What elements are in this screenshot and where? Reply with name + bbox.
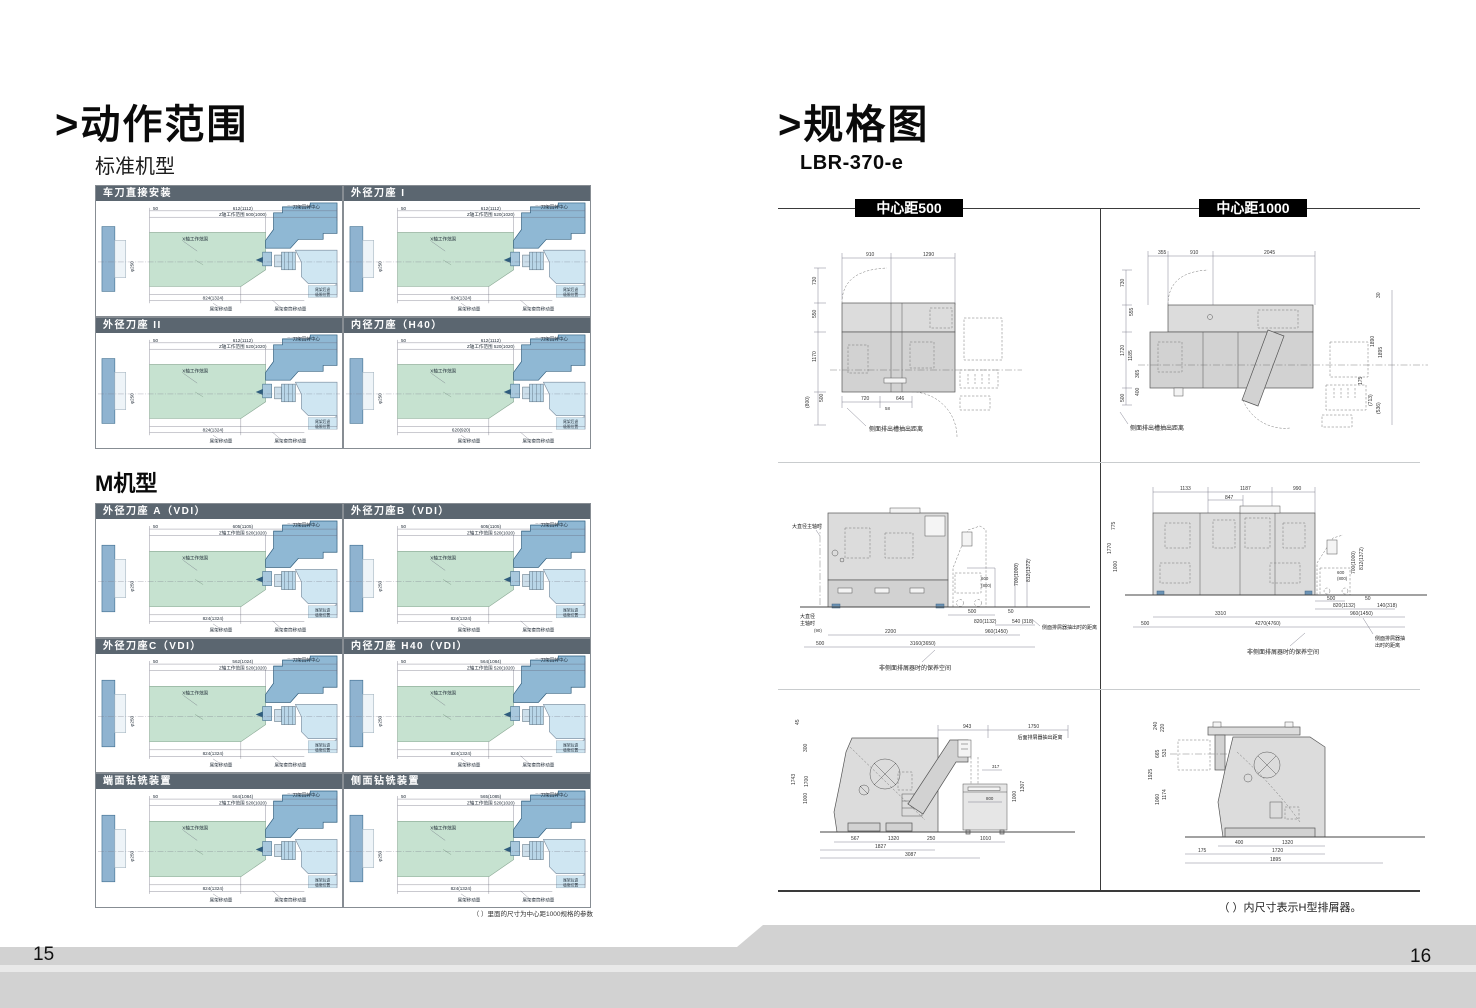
dim-label: 极限位置: [315, 882, 330, 887]
center-distance-500-label: 中心距500: [855, 199, 963, 217]
catalog-spread: >动作范围 标准机型 车刀直接安装 612(1112) Z轴工作范围 500(1…: [0, 0, 1476, 1008]
dim-label: 刀架回转中心: [541, 203, 569, 210]
panel-title: 外径刀座 A（VDI）: [96, 504, 342, 519]
dim-label: 564(1084): [232, 794, 253, 799]
dim-label: 1320: [888, 836, 899, 842]
dim-label: X轴工作范围: [182, 367, 208, 374]
dim-label: 605(1105): [233, 524, 254, 529]
model-name: LBR-370-e: [800, 152, 903, 175]
dim-label: 50: [401, 338, 407, 343]
panel-m-3: 外径刀座C（VDI） 562(1024) Z轴工作范围 520(1020) 50…: [95, 638, 343, 773]
spec-drawing-500-frontview: 大直径主轴时 600 (800) 700(1000) 812(1372) 500…: [790, 468, 1102, 698]
spec-row-divider-1: [778, 462, 1420, 463]
dim-label: 刀架回转中心: [293, 522, 321, 529]
dim-label: 尾架后退: [563, 877, 578, 882]
dim-label: 824(1324): [203, 616, 224, 621]
dim-label: 尾架移动量: [458, 438, 481, 445]
dim-label: 尾架移动量: [210, 761, 233, 768]
dim-label: 646: [896, 396, 905, 402]
dim-label: φ250: [378, 580, 383, 591]
dim-label: 847: [1225, 495, 1234, 501]
dim-label: 刀架回转中心: [541, 792, 569, 799]
panel-title: 内径刀座（H40）: [344, 318, 590, 333]
dim-label: 极限位置: [563, 612, 578, 617]
dim-label: X轴工作范围: [430, 554, 456, 561]
dim-label: 317: [992, 764, 1000, 769]
dim-label: Z轴工作范围 520(1020): [467, 343, 515, 350]
dim-label: 700(1000): [1014, 563, 1020, 586]
dim-label: 1185: [1128, 350, 1134, 361]
dim-label: (800): [1337, 576, 1348, 581]
dim-label: 3160(3650): [910, 641, 936, 647]
dim-label: 1170: [812, 351, 818, 362]
panel-std-2: 外径刀座 I 612(1112) Z轴工作范围 520(1020) 50 X轴工…: [343, 185, 591, 317]
dim-label: 尾架后退: [315, 419, 330, 424]
dim-label: X轴工作范围: [430, 235, 456, 242]
dim-label: 尾架移动量: [458, 896, 481, 903]
dim-label: X轴工作范围: [182, 235, 208, 242]
dim-label: 820(1132): [974, 619, 997, 625]
dim-label: 960(1450): [1350, 611, 1373, 617]
dim-label: 刀架回转中心: [293, 657, 321, 664]
dim-label: 50: [153, 206, 159, 211]
dim-label: 550: [812, 309, 818, 318]
dim-label: 730: [1120, 278, 1126, 287]
dim-label: 极限位置: [315, 292, 330, 297]
dim-label: 600: [1337, 570, 1345, 575]
dim-label: 990: [1293, 486, 1302, 492]
dim-label: 730: [812, 276, 818, 285]
dim-label: 极限位置: [563, 747, 578, 752]
dim-label: 尾架套筒移动量: [522, 761, 554, 768]
dim-label: 1307: [1020, 781, 1026, 792]
dim-label: 531: [1162, 748, 1168, 757]
dim-label: 824(1324): [203, 427, 224, 432]
dim-label: 45: [795, 719, 801, 725]
dim-label: 824(1324): [451, 295, 472, 300]
dim-label: 564(1084): [480, 659, 501, 664]
panel-m-1: 外径刀座 A（VDI） 605(1105) Z轴工作范围 520(1020) 5…: [95, 503, 343, 638]
annotation-label: 出时的距离: [1375, 642, 1400, 649]
panel-title: 侧面钻铣装置: [344, 774, 590, 789]
panel-m-5: 端面钻铣装置 564(1084) Z轴工作范围 520(1020) 50 X轴工…: [95, 773, 343, 908]
dim-label: 1133: [1180, 486, 1191, 492]
dim-label: 1827: [875, 844, 886, 850]
panel-m-2: 外径刀座B（VDI） 605(1105) Z轴工作范围 520(1020) 50…: [343, 503, 591, 638]
dim-label: φ250: [378, 850, 383, 861]
dim-label: X轴工作范围: [182, 824, 208, 831]
dim-label: 尾架后退: [315, 742, 330, 747]
dim-label: 1770: [1107, 543, 1113, 554]
footer-band: [0, 920, 1476, 1008]
dim-label: 824(1324): [203, 751, 224, 756]
work-range-diagram: 605(1105) Z轴工作范围 520(1020) 50 X轴工作范围 刀架回…: [344, 519, 590, 637]
dim-label: (800): [805, 396, 811, 408]
dim-label: 尾架后退: [315, 287, 330, 292]
dim-label: 1895: [1270, 857, 1281, 863]
annotation-label: 非侧面排屑器时的保养空间: [1247, 648, 1319, 656]
dim-label: 365: [1135, 369, 1141, 378]
dim-label: 2200: [885, 629, 896, 635]
dim-label: 500: [819, 393, 825, 402]
dim-label: φ250: [378, 393, 383, 404]
spec-drawing-1000-frontview: 1133 1187 990 847 775 1770 1000 600 (800…: [1105, 468, 1445, 698]
dim-label: Z轴工作范围 520(1020): [219, 665, 267, 672]
dim-label: 612(1112): [233, 206, 254, 211]
dim-label: 尾架移动量: [210, 306, 233, 313]
dim-label: 尾架后退: [315, 877, 330, 882]
panel-m-4: 内径刀座 H40（VDI） 564(1084) Z轴工作范围 520(1020)…: [343, 638, 591, 773]
dim-label: 500: [1327, 596, 1336, 602]
dim-label: 尾架后退: [563, 742, 578, 747]
annotation-label: 非侧面排屑器时的保养空间: [879, 664, 951, 672]
panel-title: 车刀直接安装: [96, 186, 342, 201]
dim-label: 612(1112): [481, 206, 502, 211]
dim-label: 尾架后退: [315, 607, 330, 612]
dim-label: 775: [1111, 521, 1117, 530]
dim-label: 665: [1155, 749, 1161, 758]
dim-label: 58: [885, 406, 890, 411]
dim-label: 500: [816, 641, 825, 647]
dim-label: φ250: [130, 715, 135, 726]
dim-label: 812(1372): [1359, 547, 1365, 570]
dim-label: 极限位置: [315, 747, 330, 752]
dim-label: 500: [1141, 621, 1150, 627]
dim-label: 极限位置: [563, 882, 578, 887]
dim-label: 824(1324): [203, 886, 224, 891]
panel-std-4: 内径刀座（H40） 612(1112) Z轴工作范围 520(1020) 50 …: [343, 317, 591, 449]
dim-label: 50: [401, 524, 407, 529]
dim-label: 50: [153, 659, 159, 664]
dim-label: 1925: [1148, 769, 1154, 780]
dim-label: 812(1372): [1026, 559, 1032, 582]
dim-label: 240: [1153, 721, 1159, 730]
dim-label: X轴工作范围: [182, 689, 208, 696]
dim-label: 565(1085): [480, 794, 501, 799]
dim-label: 极限位置: [315, 612, 330, 617]
dim-label: 尾架后退: [563, 419, 578, 424]
dim-label: 910: [1190, 250, 1199, 256]
section-standard-heading: 标准机型: [95, 150, 175, 179]
dim-label: 567: [851, 836, 860, 842]
left-page-title: >动作范围: [55, 92, 248, 150]
dim-label: 极限位置: [563, 292, 578, 297]
dim-label: 尾架后退: [563, 607, 578, 612]
dim-label: 400: [1235, 840, 1244, 846]
dim-label: Z轴工作范围 520(1020): [467, 665, 515, 672]
dim-label: 1720: [1120, 345, 1126, 356]
dim-label: 30: [1376, 292, 1382, 298]
dim-label: X轴工作范围: [430, 367, 456, 374]
dim-label: 尾架套筒移动量: [274, 306, 306, 313]
dim-label: 50: [1365, 596, 1371, 602]
panel-title: 内径刀座 H40（VDI）: [344, 639, 590, 654]
panel-title: 外径刀座 II: [96, 318, 342, 333]
dim-label: 刀架回转中心: [541, 522, 569, 529]
dim-label: 612(1112): [233, 338, 254, 343]
right-page-footnote: （ ）内尺寸表示H型排屑器。: [1160, 899, 1420, 915]
panel-title: 外径刀座 I: [344, 186, 590, 201]
dim-label: 尾架套筒移动量: [522, 626, 554, 633]
spec-drawing-1000-topview: 355 910 2045 730 555 1720 1185 365 400 5…: [1108, 230, 1438, 455]
page-number-left: 15: [33, 944, 54, 966]
dim-label: 刀架回转中心: [293, 203, 321, 210]
dim-label: 1750: [1028, 724, 1039, 730]
dim-label: 612(1112): [481, 338, 502, 343]
dim-label: 1720: [1272, 848, 1283, 854]
work-range-diagram: 612(1112) Z轴工作范围 520(1020) 50 X轴工作范围 刀架回…: [344, 333, 590, 448]
dim-label: 562(1024): [232, 659, 253, 664]
dim-label: 尾架移动量: [458, 306, 481, 313]
dim-label: 刀架回转中心: [293, 792, 321, 799]
dim-label: 300: [803, 743, 809, 752]
dim-label: (800): [981, 583, 992, 588]
dim-label: 50: [1008, 609, 1014, 615]
dim-label: 1060: [1155, 794, 1161, 805]
dim-label: X轴工作范围: [430, 824, 456, 831]
dim-label: 3310: [1215, 611, 1226, 617]
spec-drawing-1000-sideview: 240 220 665 531 1925 1060 1174 400 1320 …: [1125, 692, 1455, 922]
dim-label: (536): [1376, 402, 1382, 414]
page-number-right: 16: [1410, 946, 1431, 968]
dim-label: 尾架移动量: [458, 626, 481, 633]
dim-label: 刀架回转中心: [293, 335, 321, 342]
work-range-diagram: 564(1084) Z轴工作范围 520(1020) 50 X轴工作范围 刀架回…: [344, 654, 590, 772]
annotation-label: 大直径主轴时: [792, 523, 822, 530]
dim-label: 尾架移动量: [210, 896, 233, 903]
dim-label: 1000: [1113, 561, 1119, 572]
dim-label: 50: [401, 206, 407, 211]
dim-label: 尾架移动量: [210, 626, 233, 633]
dim-label: 50: [153, 338, 159, 343]
dim-label: 极限位置: [315, 424, 330, 429]
dim-label: 50: [153, 794, 159, 799]
panel-title: 外径刀座B（VDI）: [344, 504, 590, 519]
dim-label: 620(920): [452, 427, 471, 432]
dim-label: 220: [1160, 723, 1166, 732]
dim-label: 1010: [980, 836, 991, 842]
dim-label: 400: [1135, 387, 1141, 396]
dim-label: 960(1450): [985, 629, 1008, 635]
dim-label: 尾架套筒移动量: [522, 306, 554, 313]
dim-label: 800: [986, 796, 994, 801]
dim-label: 1320: [1282, 840, 1293, 846]
section-m-heading: M机型: [95, 466, 157, 498]
dim-label: 尾架套筒移动量: [274, 626, 306, 633]
annotation-label: 大直径: [800, 613, 815, 620]
dim-label: 175: [1198, 848, 1207, 854]
work-range-diagram: 612(1112) Z轴工作范围 520(1020) 50 X轴工作范围 刀架回…: [96, 333, 342, 448]
dim-label: 刀架回转中心: [541, 657, 569, 664]
dim-label: 1700: [804, 776, 810, 787]
dim-label: 尾架移动量: [458, 761, 481, 768]
dim-label: 极限位置: [563, 424, 578, 429]
dim-label: 1187: [1240, 486, 1251, 492]
work-range-diagram: 612(1112) Z轴工作范围 500(1000) 50 X轴工作范围 刀架回…: [96, 201, 342, 316]
dim-label: 1743: [791, 774, 797, 785]
dim-label: 尾架套筒移动量: [274, 438, 306, 445]
dim-label: X轴工作范围: [182, 554, 208, 561]
dim-label: 720: [861, 396, 870, 402]
dim-label: 4270(4760): [1255, 621, 1281, 627]
dim-label: 尾架套筒移动量: [522, 896, 554, 903]
dim-label: 尾架后退: [563, 287, 578, 292]
dim-label: 1174: [1162, 789, 1168, 800]
panel-title: 端面钻铣装置: [96, 774, 342, 789]
dim-label: φ250: [130, 850, 135, 861]
dim-label: φ250: [378, 715, 383, 726]
dim-label: 824(1324): [451, 751, 472, 756]
dim-label: 500: [1120, 393, 1126, 402]
dim-label: φ250: [130, 580, 135, 591]
dim-label: 50: [401, 659, 407, 664]
dim-label: 尾架套筒移动量: [522, 438, 554, 445]
dim-label: 600: [981, 576, 989, 581]
dim-label: 50: [401, 794, 407, 799]
center-distance-1000-label: 中心距1000: [1199, 199, 1307, 217]
dim-label: 175: [1358, 376, 1364, 385]
dim-label: X轴工作范围: [430, 689, 456, 696]
annotation-label: 后面排屑器抽出距离: [1017, 734, 1062, 741]
dim-label: 1000: [803, 793, 809, 804]
dim-label: 555: [1129, 307, 1135, 316]
dim-label: (90): [814, 628, 822, 633]
annotation-label: 主轴时: [800, 620, 815, 627]
dim-label: Z轴工作范围 520(1020): [467, 800, 515, 807]
dim-label: 500: [968, 609, 977, 615]
right-page-title: >规格图: [778, 92, 929, 150]
dim-label: (713): [1368, 394, 1374, 406]
dim-label: 3087: [905, 852, 916, 858]
dim-label: 943: [963, 724, 972, 730]
dim-label: 尾架套筒移动量: [274, 896, 306, 903]
work-range-diagram: 605(1105) Z轴工作范围 520(1020) 50 X轴工作范围 刀架回…: [96, 519, 342, 637]
dim-label: φ250: [378, 261, 383, 272]
annotation-label: 侧面排屑器抽出时的距离: [1042, 624, 1097, 631]
dim-label: 1895: [1378, 347, 1384, 358]
dim-label: 355: [1158, 250, 1167, 256]
panel-m-6: 侧面钻铣装置 565(1085) Z轴工作范围 520(1020) 50 X轴工…: [343, 773, 591, 908]
dim-label: Z轴工作范围 520(1020): [219, 343, 267, 350]
dim-label: 910: [866, 252, 875, 258]
dim-label: Z轴工作范围 520(1020): [467, 530, 515, 537]
panel-std-3: 外径刀座 II 612(1112) Z轴工作范围 520(1020) 50 X轴…: [95, 317, 343, 449]
dim-label: 尾架移动量: [210, 438, 233, 445]
dim-label: 820(1132): [1333, 603, 1356, 609]
dim-label: 250: [927, 836, 936, 842]
dim-label: 824(1324): [203, 295, 224, 300]
panel-std-1: 车刀直接安装 612(1112) Z轴工作范围 500(1000) 50 X轴工…: [95, 185, 343, 317]
annotation-label: 侧面排屑器抽: [1375, 635, 1405, 642]
annotation-label: 侧面排出槽抽出距离: [1130, 424, 1184, 432]
dim-label: 1890: [1370, 336, 1376, 347]
work-range-diagram: 562(1024) Z轴工作范围 520(1020) 50 X轴工作范围 刀架回…: [96, 654, 342, 772]
dim-label: 刀架回转中心: [541, 335, 569, 342]
annotation-label: 侧面排出槽抽出距离: [869, 425, 923, 433]
dim-label: 540 (318): [1012, 619, 1034, 625]
spec-drawing-500-topview: 910 1290 730 550 1170 (800) 500 720 646 …: [792, 230, 1100, 455]
dim-label: Z轴工作范围 500(1000): [219, 211, 267, 218]
dim-label: 50: [153, 524, 159, 529]
dim-label: Z轴工作范围 520(1020): [467, 211, 515, 218]
dim-label: Z轴工作范围 520(1020): [219, 530, 267, 537]
dim-label: 140(318): [1377, 603, 1397, 609]
work-range-diagram: 565(1085) Z轴工作范围 520(1020) 50 X轴工作范围 刀架回…: [344, 789, 590, 907]
panel-title: 外径刀座C（VDI）: [96, 639, 342, 654]
dim-label: 824(1324): [451, 886, 472, 891]
work-range-diagram: 612(1112) Z轴工作范围 520(1020) 50 X轴工作范围 刀架回…: [344, 201, 590, 316]
dim-label: 605(1105): [481, 524, 502, 529]
dim-label: Z轴工作范围 520(1020): [219, 800, 267, 807]
dim-label: 1290: [923, 252, 934, 258]
work-range-diagram: 564(1084) Z轴工作范围 520(1020) 50 X轴工作范围 刀架回…: [96, 789, 342, 907]
dim-label: 1000: [1012, 791, 1018, 802]
dim-label: 尾架套筒移动量: [274, 761, 306, 768]
dim-label: φ250: [130, 393, 135, 404]
dim-label: 824(1324): [451, 616, 472, 621]
dim-label: φ250: [130, 261, 135, 272]
dim-label: 2045: [1264, 250, 1275, 256]
dim-label: 700(1000): [1351, 551, 1357, 574]
left-page-footnote: （ ）里面的尺寸为中心距1000规格的参数: [333, 908, 593, 918]
spec-drawing-500-sideview: 45 943 1750 后面排屑器抽出距离 317 800 1000 1307 …: [790, 692, 1102, 908]
